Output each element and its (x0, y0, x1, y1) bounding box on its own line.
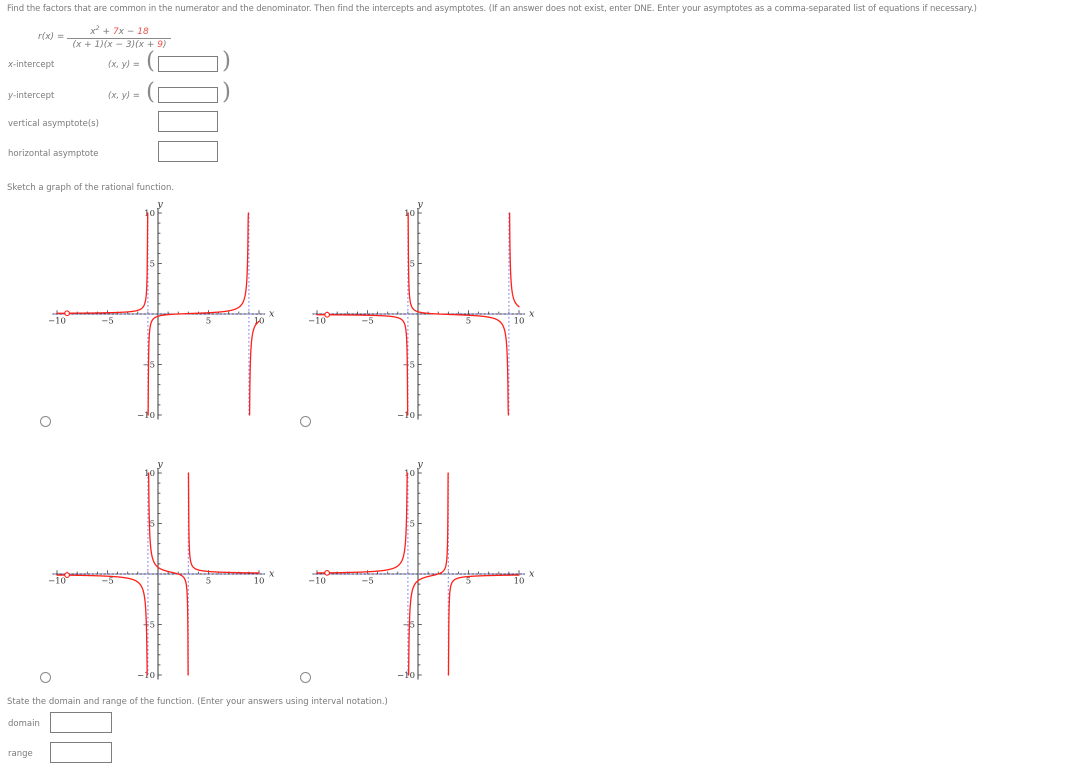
svg-text:10: 10 (514, 317, 525, 327)
svg-text:5: 5 (206, 577, 211, 587)
svg-text:10: 10 (144, 209, 155, 219)
rational-function-formula: r(x) = x2 + 7x − 18 (x + 1)(x − 3)(x + 9… (38, 24, 171, 50)
y-intercept-input[interactable] (158, 87, 218, 103)
formula-lhs: r(x) = (38, 32, 64, 42)
svg-text:5: 5 (410, 519, 415, 529)
x-intercept-close-paren: ) (222, 50, 231, 73)
svg-text:5: 5 (466, 317, 471, 327)
svg-text:−5: −5 (101, 577, 114, 587)
y-intercept-close-paren: ) (222, 81, 231, 104)
svg-text:−10: −10 (397, 411, 415, 421)
svg-text:−10: −10 (308, 317, 326, 327)
sketch-heading: Sketch a graph of the rational function. (7, 183, 174, 193)
svg-text:y: y (156, 199, 163, 210)
svg-text:5: 5 (206, 317, 211, 327)
graph-option-c-plot: −10−5510105−5−10xy (34, 457, 280, 689)
svg-text:y: y (416, 199, 423, 210)
vertical-asymptotes-label: vertical asymptote(s) (8, 119, 99, 129)
graph-option-d-radio[interactable] (300, 672, 311, 683)
horizontal-asymptote-label: horizontal asymptote (8, 149, 99, 159)
range-input[interactable] (50, 742, 112, 763)
svg-text:x: x (269, 309, 275, 320)
svg-text:10: 10 (514, 577, 525, 587)
svg-text:x: x (529, 309, 535, 320)
y-intercept-coord-prefix: (x, y) = (108, 91, 140, 101)
svg-text:−10: −10 (308, 577, 326, 587)
graph-option-a-radio[interactable] (40, 416, 51, 427)
svg-text:−10: −10 (48, 317, 66, 327)
x-intercept-input[interactable] (158, 56, 218, 72)
x-intercept-coord-prefix: (x, y) = (108, 60, 140, 70)
svg-text:10: 10 (254, 577, 265, 587)
svg-text:−10: −10 (397, 671, 415, 681)
y-intercept-label: y-intercept (8, 91, 54, 101)
problem-instructions: Find the factors that are common in the … (7, 4, 977, 14)
domain-label: domain (8, 719, 40, 729)
svg-text:5: 5 (410, 259, 415, 269)
svg-text:x: x (529, 569, 535, 580)
svg-text:y: y (156, 459, 163, 470)
horizontal-asymptote-input[interactable] (158, 141, 218, 162)
svg-text:5: 5 (150, 519, 155, 529)
svg-text:x: x (269, 569, 275, 580)
x-intercept-open-paren: ( (146, 50, 155, 73)
y-intercept-open-paren: ( (146, 81, 155, 104)
svg-text:5: 5 (150, 259, 155, 269)
domain-range-heading: State the domain and range of the functi… (7, 697, 388, 707)
vertical-asymptotes-input[interactable] (158, 111, 218, 132)
svg-text:−5: −5 (142, 620, 155, 630)
svg-text:−5: −5 (402, 360, 415, 370)
formula-numerator: x2 + 7x − 18 (67, 24, 171, 38)
graph-option-b-radio[interactable] (300, 416, 311, 427)
svg-text:10: 10 (404, 209, 415, 219)
graph-option-d-plot: −10−5510105−5−10xy (294, 457, 540, 689)
webassign-problem-page: { "instructions": "Find the factors that… (0, 0, 1068, 770)
svg-text:−10: −10 (137, 411, 155, 421)
graph-option-c-radio[interactable] (40, 672, 51, 683)
svg-text:10: 10 (404, 469, 415, 479)
formula-fraction: x2 + 7x − 18 (x + 1)(x − 3)(x + 9) (67, 24, 171, 50)
svg-text:10: 10 (144, 469, 155, 479)
x-intercept-label: x-intercept (8, 60, 54, 70)
range-label: range (8, 749, 33, 759)
graph-option-a-plot: −10−5510105−5−10xy (34, 197, 280, 429)
svg-text:−5: −5 (361, 317, 374, 327)
domain-input[interactable] (50, 712, 112, 733)
graph-option-b-plot: −10−5510105−5−10xy (294, 197, 540, 429)
svg-text:−10: −10 (137, 671, 155, 681)
svg-text:−5: −5 (101, 317, 114, 327)
svg-text:−5: −5 (361, 577, 374, 587)
svg-text:5: 5 (466, 577, 471, 587)
formula-denominator: (x + 1)(x − 3)(x + 9) (67, 38, 171, 50)
svg-text:−10: −10 (48, 577, 66, 587)
svg-text:y: y (416, 459, 423, 470)
